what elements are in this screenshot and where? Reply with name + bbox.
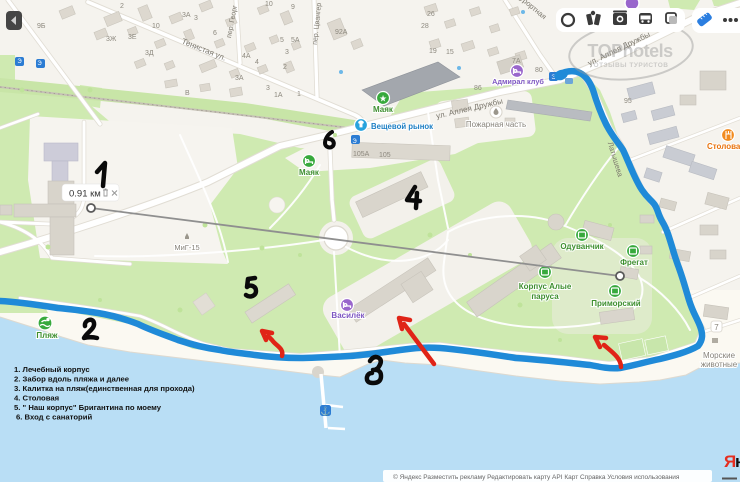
svg-text:86: 86 <box>474 85 482 92</box>
svg-text:3Ж: 3Ж <box>106 36 117 43</box>
svg-text:3Е: 3Е <box>128 34 137 41</box>
svg-text:4. Столовая: 4. Столовая <box>14 394 59 403</box>
svg-text:Э: Э <box>352 139 357 145</box>
svg-text:1А: 1А <box>274 92 283 99</box>
svg-text:26: 26 <box>427 11 435 18</box>
svg-text:3: 3 <box>285 49 289 56</box>
svg-text:5: 5 <box>280 37 284 44</box>
svg-text:Э: Э <box>17 59 22 65</box>
svg-text:2: 2 <box>120 3 124 10</box>
svg-text:Корпус Алые: Корпус Алые <box>519 282 572 291</box>
svg-text:92А: 92А <box>335 29 348 36</box>
svg-text:МиГ-15: МиГ-15 <box>174 243 199 252</box>
svg-text:2. Забор вдоль пляжа и далее: 2. Забор вдоль пляжа и далее <box>14 375 130 384</box>
svg-text:10: 10 <box>265 1 273 8</box>
svg-text:Приморский: Приморский <box>591 299 641 308</box>
svg-text:© Яндекс Разместить рекламу: © Яндекс Разместить рекламу Редактироват… <box>393 473 680 481</box>
svg-text:3. Калитка на пляж(единственна: 3. Калитка на пляж(единственная для прох… <box>14 384 195 393</box>
svg-text:5А: 5А <box>291 37 300 44</box>
svg-text:6. Вход с санаторий: 6. Вход с санаторий <box>16 413 92 422</box>
svg-text:животные: животные <box>701 360 738 369</box>
svg-text:Маяк: Маяк <box>373 105 394 114</box>
svg-text:Вещевой рынок: Вещевой рынок <box>371 122 433 131</box>
svg-text:0.91 км: 0.91 км <box>69 189 101 200</box>
svg-text:Василёк: Василёк <box>331 311 365 320</box>
svg-text:TOPhotels: TOPhotels <box>587 41 673 61</box>
svg-text:6: 6 <box>213 30 217 37</box>
svg-text:95: 95 <box>624 98 632 105</box>
svg-text:3: 3 <box>266 85 270 92</box>
svg-text:105А: 105А <box>353 151 370 158</box>
svg-text:9: 9 <box>291 4 295 11</box>
svg-text:19: 19 <box>429 48 437 55</box>
svg-text:⚓: ⚓ <box>320 406 331 416</box>
svg-text:Пляж: Пляж <box>36 331 58 340</box>
svg-text:Адмирал клуб: Адмирал клуб <box>492 77 544 86</box>
svg-text:Одуванчик: Одуванчик <box>560 242 604 251</box>
svg-text:28: 28 <box>421 23 429 30</box>
svg-text:9Б: 9Б <box>37 23 46 30</box>
svg-text:4А: 4А <box>242 53 251 60</box>
svg-text:Пожарная часть: Пожарная часть <box>466 120 526 129</box>
svg-text:Маяк: Маяк <box>299 168 320 177</box>
svg-text:1: 1 <box>297 91 301 98</box>
svg-text:В: В <box>185 90 190 97</box>
svg-text:2: 2 <box>283 64 287 71</box>
svg-text:80: 80 <box>535 67 543 74</box>
svg-text:★: ★ <box>379 94 387 104</box>
svg-text:Морские: Морские <box>703 351 736 360</box>
svg-text:паруса: паруса <box>531 292 559 301</box>
svg-text:5. " Наш корпус" Бригантина по: 5. " Наш корпус" Бригантина по моему <box>14 403 162 412</box>
svg-text:3: 3 <box>194 15 198 22</box>
svg-text:н: н <box>735 452 740 471</box>
svg-text:4: 4 <box>255 59 259 66</box>
svg-text:10: 10 <box>152 23 160 30</box>
svg-text:1. Лечебный корпус: 1. Лечебный корпус <box>14 365 90 374</box>
svg-text:Фрегат: Фрегат <box>620 258 648 267</box>
svg-text:3А: 3А <box>182 12 191 19</box>
svg-text:3Д: 3Д <box>145 50 154 57</box>
svg-text:3А: 3А <box>235 75 244 82</box>
svg-text:105: 105 <box>379 152 391 159</box>
svg-text:ОТЗЫВЫ ТУРИСТОВ: ОТЗЫВЫ ТУРИСТОВ <box>594 62 669 69</box>
svg-text:7: 7 <box>714 323 719 332</box>
svg-text:15: 15 <box>446 49 454 56</box>
svg-text:Столовая: Столовая <box>707 142 740 151</box>
svg-text:Э: Э <box>37 61 42 67</box>
